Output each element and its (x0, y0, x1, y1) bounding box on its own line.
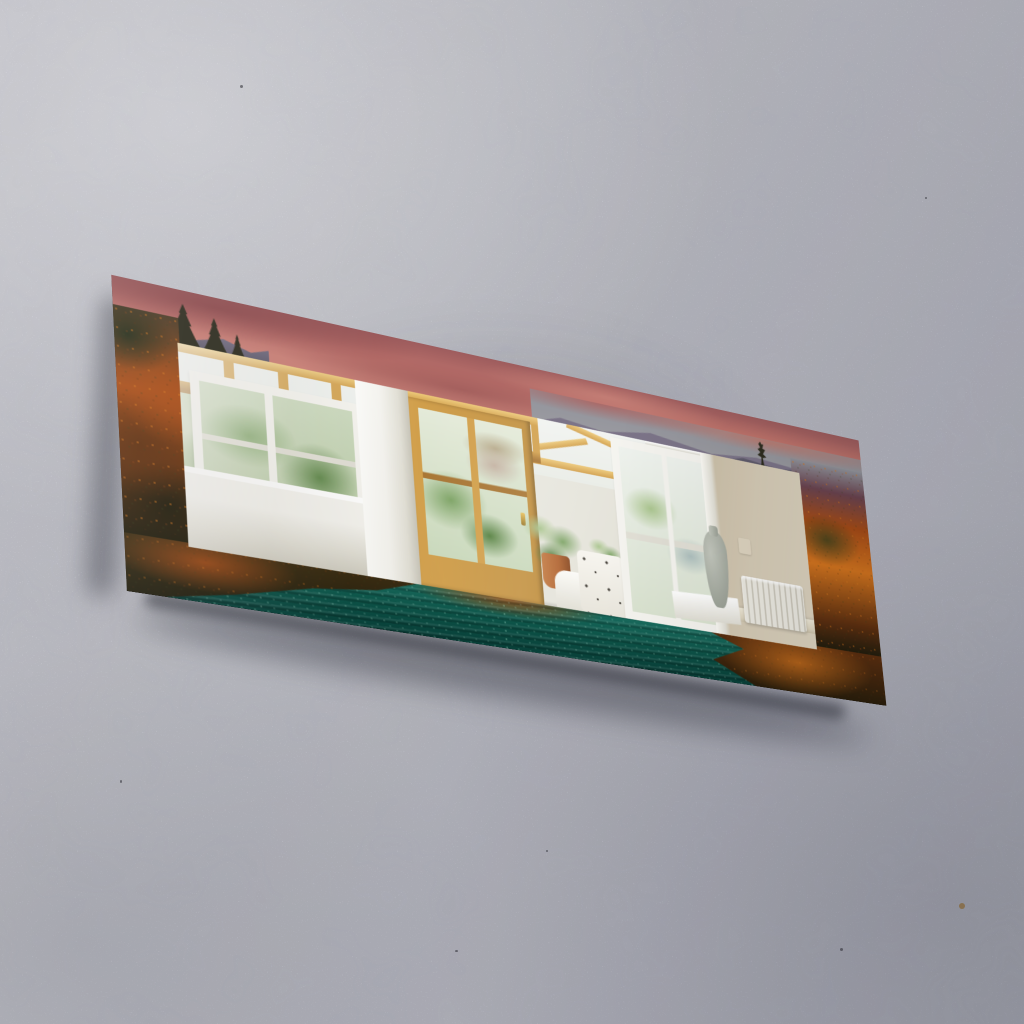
vase-neck (708, 525, 718, 537)
white-radiator (741, 575, 807, 632)
reflection-oak-glazed-door (408, 396, 545, 605)
wall-speck (120, 780, 122, 783)
wall-speck (925, 197, 927, 199)
wall-art-scene (119, 268, 1024, 598)
light-switch (738, 537, 751, 555)
print-autumn-forest-left (113, 304, 191, 545)
wall-stain (959, 903, 965, 909)
wall-speck (455, 950, 458, 952)
wall-speck (546, 850, 548, 852)
wall-speck (240, 85, 243, 88)
photo-canvas: { "image": { "kind": "product-photo", "d… (0, 0, 1024, 1024)
door-glass-panes (418, 408, 533, 573)
wall-speck (840, 948, 843, 951)
foliage-speckle-texture (113, 304, 191, 545)
